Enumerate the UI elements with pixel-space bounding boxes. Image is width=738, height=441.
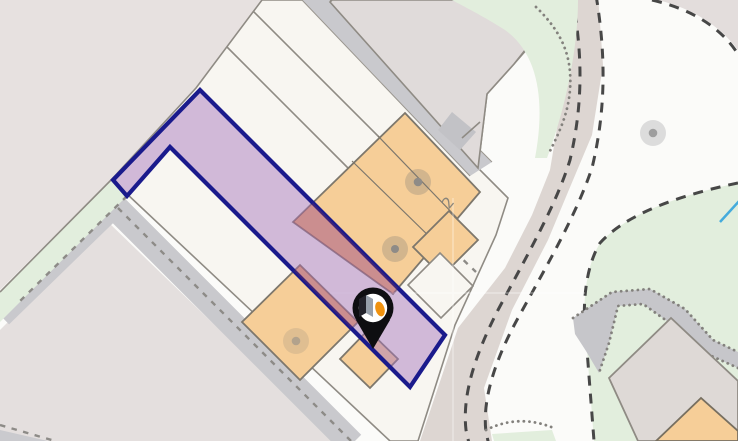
poi-marker[interactable] xyxy=(382,236,408,262)
poi-marker[interactable] xyxy=(640,120,666,146)
poi-dot-icon xyxy=(649,129,658,138)
poi-dot-icon xyxy=(414,178,423,187)
map-canvas: 2 xyxy=(0,0,738,441)
map-viewport[interactable]: 2 xyxy=(0,0,738,441)
poi-dot-icon xyxy=(391,245,399,253)
poi-dot-icon xyxy=(292,337,301,346)
poi-marker[interactable] xyxy=(283,328,309,354)
poi-marker[interactable] xyxy=(405,169,431,195)
